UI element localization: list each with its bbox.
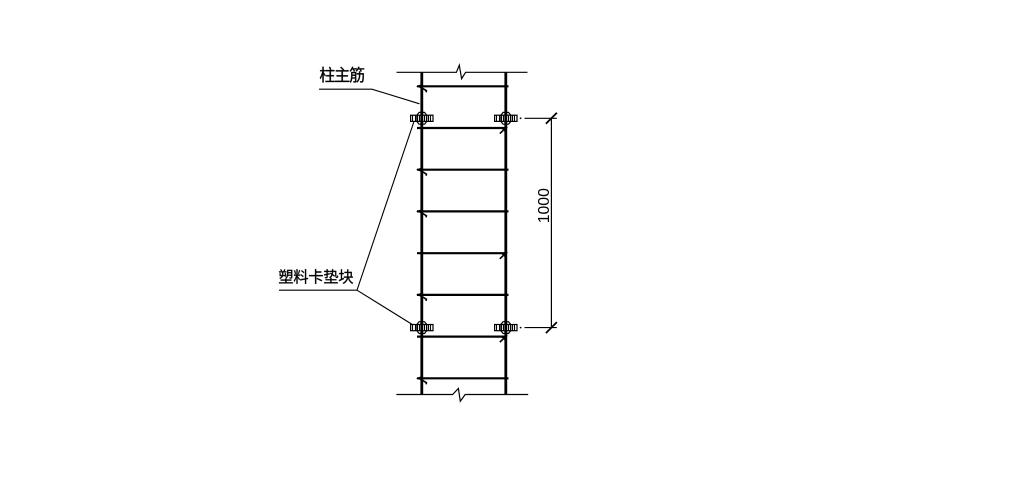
- svg-text:1000: 1000: [536, 188, 553, 223]
